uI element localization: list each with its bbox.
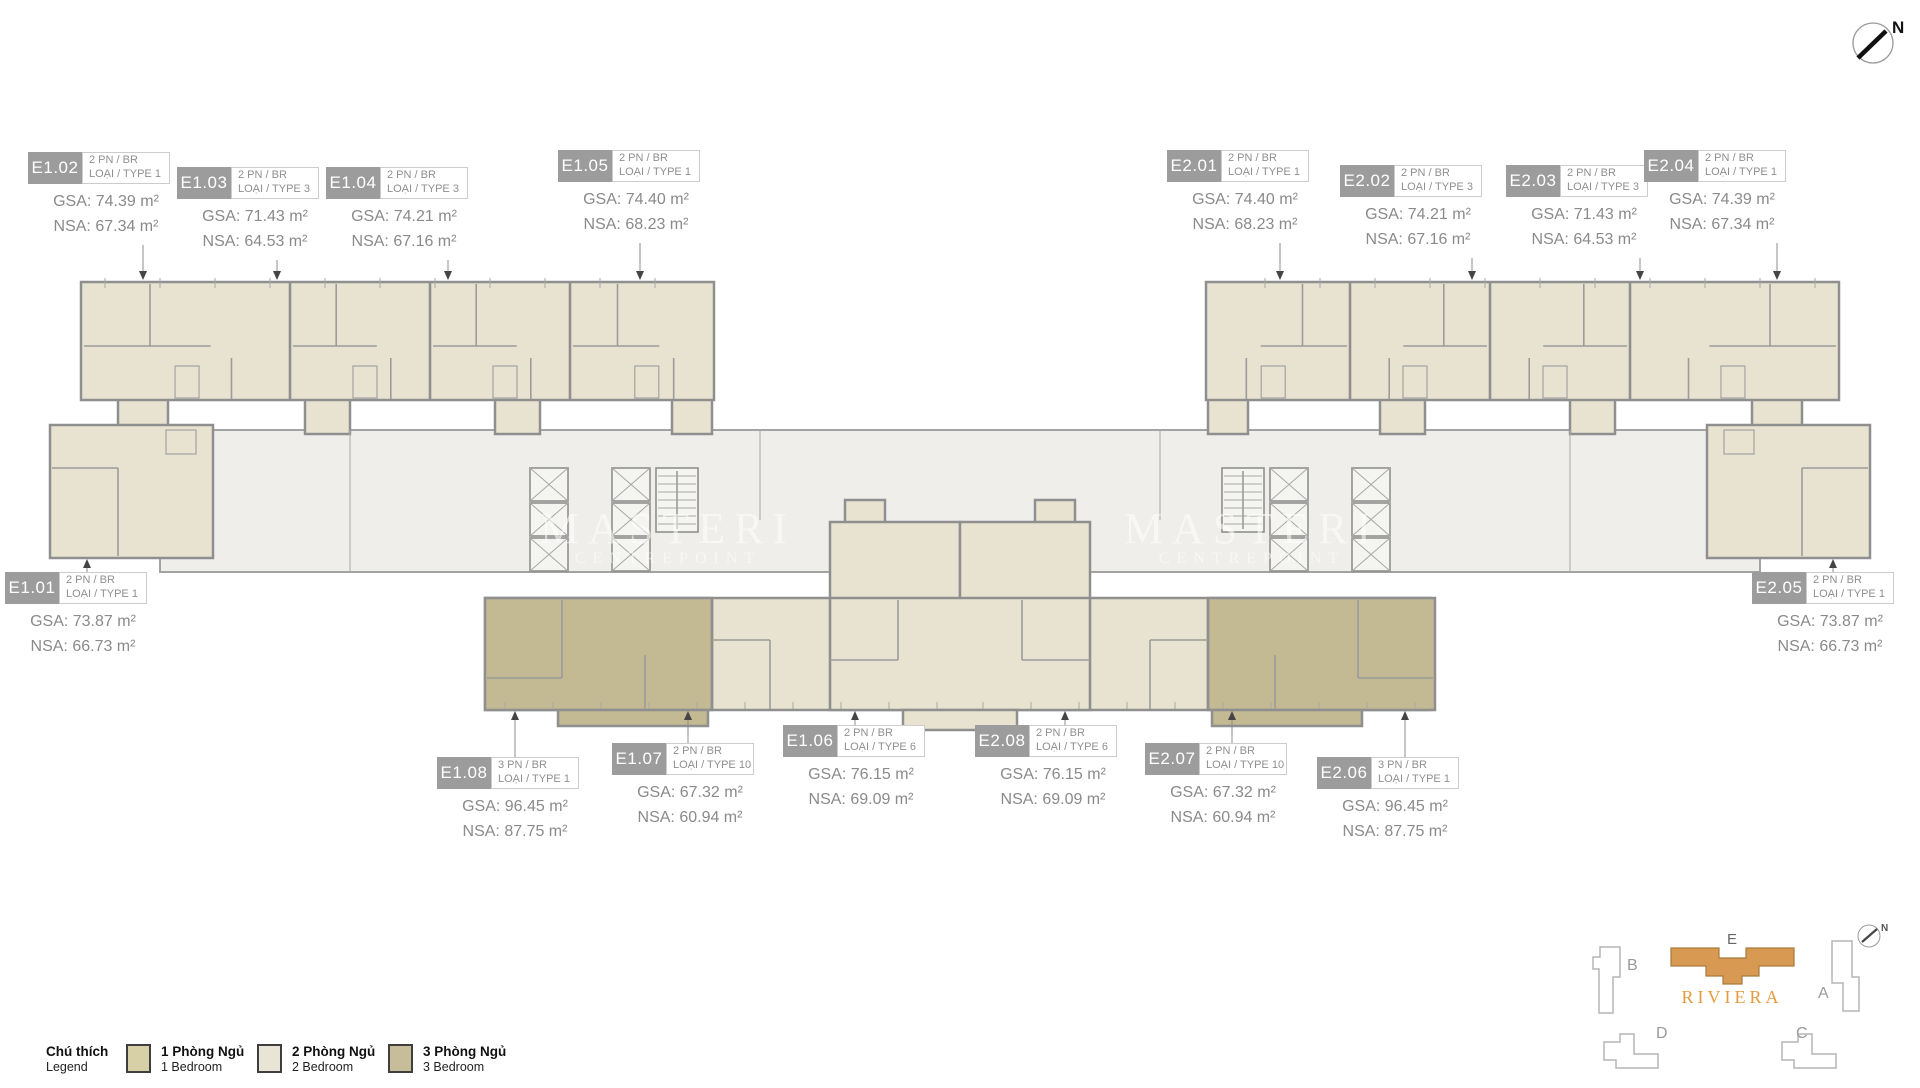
legend-label-2br-vi: 2 Phòng Ngủ	[292, 1044, 375, 1060]
unit-type-box: 2 PN / BRLOẠI / TYPE 3	[380, 167, 468, 199]
site-key: E B A D C RIVIERA N	[1593, 923, 1888, 1068]
unit-label-E2.05: E2.052 PN / BRLOẠI / TYPE 1	[1752, 572, 1894, 604]
leader-arrow	[1468, 271, 1476, 280]
unit-type-box: 2 PN / BRLOẠI / TYPE 1	[1698, 150, 1786, 182]
legend-label-3br-en: 3 Bedroom	[423, 1060, 506, 1075]
key-label-d: D	[1656, 1025, 1668, 1042]
unit-id-badge: E2.03	[1506, 165, 1560, 197]
unit-type-line: LOẠI / TYPE 10	[673, 759, 753, 773]
leader-arrow	[1061, 711, 1069, 720]
unit-gsa: GSA: 74.40 m²	[1155, 187, 1335, 212]
unit-type-box: 2 PN / BRLOẠI / TYPE 1	[1806, 572, 1894, 604]
unit-nsa: NSA: 60.94 m²	[1133, 805, 1313, 830]
unit-bedrooms-line: 2 PN / BR	[387, 169, 467, 183]
unit-label-E2.01: E2.012 PN / BRLOẠI / TYPE 1	[1167, 150, 1309, 182]
unit-id-badge: E2.06	[1317, 757, 1371, 789]
key-label-b: B	[1627, 957, 1638, 974]
unit-areas-E2.08: GSA: 76.15 m²NSA: 69.09 m²	[963, 762, 1143, 812]
unit-label-E1.02: E1.022 PN / BRLOẠI / TYPE 1	[28, 152, 170, 184]
leader-arrow	[273, 271, 281, 280]
unit-bedrooms-line: 2 PN / BR	[1228, 152, 1308, 166]
key-building-a	[1832, 941, 1859, 1011]
plan-unit-end	[50, 425, 213, 558]
unit-id-badge: E2.02	[1340, 165, 1394, 197]
unit-gsa: GSA: 96.45 m²	[425, 794, 605, 819]
legend: Chú thích Legend 1 Phòng Ngủ 1 Bedroom 2…	[46, 1044, 519, 1075]
unit-bedrooms-line: 2 PN / BR	[673, 745, 753, 759]
legend-swatch-3br	[388, 1044, 413, 1073]
unit-type-line: LOẠI / TYPE 1	[1705, 166, 1785, 180]
unit-label-E2.08: E2.082 PN / BRLOẠI / TYPE 6	[975, 725, 1117, 757]
unit-id-badge: E1.01	[5, 572, 59, 604]
legend-item-2br: 2 Phòng Ngủ 2 Bedroom	[257, 1044, 388, 1075]
unit-gsa: GSA: 76.15 m²	[771, 762, 951, 787]
unit-gsa: GSA: 73.87 m²	[1740, 609, 1920, 634]
unit-nsa: NSA: 67.34 m²	[1632, 212, 1812, 237]
unit-bedrooms-line: 2 PN / BR	[619, 152, 699, 166]
unit-bedrooms-line: 2 PN / BR	[844, 727, 924, 741]
unit-bedrooms-line: 3 PN / BR	[498, 759, 578, 773]
leader-arrow	[139, 271, 147, 280]
unit-gsa: GSA: 67.32 m²	[1133, 780, 1313, 805]
floor-plan: MASTERICENTREPOINTMASTERICENTREPOINT N E…	[0, 0, 1920, 1088]
unit-label-E2.06: E2.063 PN / BRLOẠI / TYPE 1	[1317, 757, 1459, 789]
unit-areas-E2.01: GSA: 74.40 m²NSA: 68.23 m²	[1155, 187, 1335, 237]
unit-type-box: 2 PN / BRLOẠI / TYPE 10	[666, 743, 754, 775]
unit-nsa: NSA: 69.09 m²	[963, 787, 1143, 812]
unit-type-box: 2 PN / BRLOẠI / TYPE 1	[612, 150, 700, 182]
compass: N	[1853, 18, 1904, 63]
unit-label-E2.07: E2.072 PN / BRLOẠI / TYPE 10	[1145, 743, 1287, 775]
unit-areas-E2.04: GSA: 74.39 m²NSA: 67.34 m²	[1632, 187, 1812, 237]
unit-label-E2.03: E2.032 PN / BRLOẠI / TYPE 3	[1506, 165, 1648, 197]
unit-type-line: LOẠI / TYPE 1	[89, 168, 169, 182]
plan-unit-3br	[1208, 598, 1435, 710]
unit-type-box: 2 PN / BRLOẠI / TYPE 1	[82, 152, 170, 184]
project-name: RIVIERA	[1682, 987, 1783, 1007]
unit-areas-E1.08: GSA: 96.45 m²NSA: 87.75 m²	[425, 794, 605, 844]
unit-label-E1.05: E1.052 PN / BRLOẠI / TYPE 1	[558, 150, 700, 182]
unit-type-line: LOẠI / TYPE 1	[1813, 588, 1893, 602]
unit-label-E1.08: E1.083 PN / BRLOẠI / TYPE 1	[437, 757, 579, 789]
unit-label-E1.06: E1.062 PN / BRLOẠI / TYPE 6	[783, 725, 925, 757]
unit-id-badge: E2.01	[1167, 150, 1221, 182]
unit-gsa: GSA: 74.21 m²	[314, 204, 494, 229]
unit-gsa: GSA: 73.87 m²	[0, 609, 173, 634]
unit-gsa: GSA: 67.32 m²	[600, 780, 780, 805]
unit-nsa: NSA: 66.73 m²	[1740, 634, 1920, 659]
watermark-subtext: CENTREPOINT	[1159, 550, 1345, 567]
unit-type-line: LOẠI / TYPE 3	[238, 183, 318, 197]
key-compass-north-label: N	[1881, 923, 1888, 934]
leader-arrow	[1829, 559, 1837, 568]
unit-id-badge: E1.07	[612, 743, 666, 775]
unit-id-badge: E2.05	[1752, 572, 1806, 604]
unit-type-line: LOẠI / TYPE 6	[844, 741, 924, 755]
unit-label-E1.01: E1.012 PN / BRLOẠI / TYPE 1	[5, 572, 147, 604]
key-building-b	[1593, 947, 1620, 1013]
unit-type-line: LOẠI / TYPE 1	[498, 773, 578, 787]
unit-type-line: LOẠI / TYPE 1	[66, 588, 146, 602]
unit-gsa: GSA: 96.45 m²	[1305, 794, 1485, 819]
unit-bedrooms-line: 2 PN / BR	[1813, 574, 1893, 588]
unit-type-box: 2 PN / BRLOẠI / TYPE 3	[1394, 165, 1482, 197]
legend-swatch-1br	[126, 1044, 151, 1073]
legend-title-vi: Chú thích	[46, 1044, 126, 1060]
unit-bedrooms-line: 2 PN / BR	[66, 574, 146, 588]
unit-bedrooms-line: 2 PN / BR	[238, 169, 318, 183]
unit-areas-E1.07: GSA: 67.32 m²NSA: 60.94 m²	[600, 780, 780, 830]
unit-nsa: NSA: 68.23 m²	[546, 212, 726, 237]
top-wing	[81, 282, 714, 400]
legend-swatch-2br	[257, 1044, 282, 1073]
key-building-c	[1782, 1034, 1836, 1068]
unit-bedrooms-line: 2 PN / BR	[1567, 167, 1647, 181]
floorplan-page: MASTERICENTREPOINTMASTERICENTREPOINT N E…	[0, 0, 1920, 1088]
key-label-a: A	[1818, 985, 1829, 1002]
leader-arrow	[1401, 711, 1409, 720]
unit-areas-E1.01: GSA: 73.87 m²NSA: 66.73 m²	[0, 609, 173, 659]
unit-id-badge: E2.07	[1145, 743, 1199, 775]
leader-arrow	[1773, 271, 1781, 280]
unit-areas-E2.07: GSA: 67.32 m²NSA: 60.94 m²	[1133, 780, 1313, 830]
unit-gsa: GSA: 76.15 m²	[963, 762, 1143, 787]
plan-unit-end	[1707, 425, 1870, 558]
legend-label-2br-en: 2 Bedroom	[292, 1060, 375, 1075]
unit-type-box: 3 PN / BRLOẠI / TYPE 1	[1371, 757, 1459, 789]
unit-type-line: LOẠI / TYPE 1	[1228, 166, 1308, 180]
unit-gsa: GSA: 74.21 m²	[1328, 202, 1508, 227]
unit-id-badge: E1.08	[437, 757, 491, 789]
unit-nsa: NSA: 87.75 m²	[425, 819, 605, 844]
unit-type-box: 2 PN / BRLOẠI / TYPE 3	[231, 167, 319, 199]
unit-areas-E2.05: GSA: 73.87 m²NSA: 66.73 m²	[1740, 609, 1920, 659]
legend-title: Chú thích Legend	[46, 1044, 126, 1075]
unit-id-badge: E1.05	[558, 150, 612, 182]
watermark-text: MASTERI	[1124, 504, 1380, 553]
leader-arrow	[444, 271, 452, 280]
unit-label-E2.04: E2.042 PN / BRLOẠI / TYPE 1	[1644, 150, 1786, 182]
legend-title-en: Legend	[46, 1060, 126, 1075]
key-building-e	[1671, 948, 1794, 984]
unit-nsa: NSA: 67.16 m²	[1328, 227, 1508, 252]
compass-north-label: N	[1892, 18, 1904, 37]
unit-label-E1.04: E1.042 PN / BRLOẠI / TYPE 3	[326, 167, 468, 199]
unit-type-box: 2 PN / BRLOẠI / TYPE 6	[1029, 725, 1117, 757]
unit-bedrooms-line: 2 PN / BR	[1036, 727, 1116, 741]
unit-nsa: NSA: 87.75 m²	[1305, 819, 1485, 844]
unit-gsa: GSA: 74.39 m²	[1632, 187, 1812, 212]
legend-label-1br-vi: 1 Phòng Ngủ	[161, 1044, 244, 1060]
key-label-e: E	[1727, 931, 1737, 948]
unit-type-line: LOẠI / TYPE 1	[619, 166, 699, 180]
top-wing	[1206, 282, 1839, 400]
unit-type-line: LOẠI / TYPE 3	[387, 183, 467, 197]
leader-arrow	[511, 711, 519, 720]
unit-bedrooms-line: 2 PN / BR	[89, 154, 169, 168]
plan-unit-3br	[485, 598, 712, 710]
key-compass: N	[1858, 923, 1888, 947]
unit-type-box: 2 PN / BRLOẠI / TYPE 1	[1221, 150, 1309, 182]
unit-nsa: NSA: 69.09 m²	[771, 787, 951, 812]
unit-bedrooms-line: 3 PN / BR	[1378, 759, 1458, 773]
unit-type-box: 2 PN / BRLOẠI / TYPE 1	[59, 572, 147, 604]
unit-type-box: 3 PN / BRLOẠI / TYPE 1	[491, 757, 579, 789]
leader-arrow	[1276, 271, 1284, 280]
unit-label-E2.02: E2.022 PN / BRLOẠI / TYPE 3	[1340, 165, 1482, 197]
unit-label-E1.07: E1.072 PN / BRLOẠI / TYPE 10	[612, 743, 754, 775]
unit-areas-E2.06: GSA: 96.45 m²NSA: 87.75 m²	[1305, 794, 1485, 844]
unit-id-badge: E1.06	[783, 725, 837, 757]
legend-item-3br: 3 Phòng Ngủ 3 Bedroom	[388, 1044, 519, 1075]
legend-item-1br: 1 Phòng Ngủ 1 Bedroom	[126, 1044, 257, 1075]
unit-id-badge: E2.08	[975, 725, 1029, 757]
unit-areas-E2.02: GSA: 74.21 m²NSA: 67.16 m²	[1328, 202, 1508, 252]
unit-id-badge: E2.04	[1644, 150, 1698, 182]
watermark-subtext: CENTREPOINT	[575, 550, 761, 567]
unit-areas-E1.04: GSA: 74.21 m²NSA: 67.16 m²	[314, 204, 494, 254]
unit-type-box: 2 PN / BRLOẠI / TYPE 6	[837, 725, 925, 757]
unit-id-badge: E1.03	[177, 167, 231, 199]
unit-bedrooms-line: 2 PN / BR	[1206, 745, 1286, 759]
unit-type-line: LOẠI / TYPE 6	[1036, 741, 1116, 755]
key-label-c: C	[1796, 1025, 1808, 1042]
unit-nsa: NSA: 67.16 m²	[314, 229, 494, 254]
unit-id-badge: E1.04	[326, 167, 380, 199]
unit-type-box: 2 PN / BRLOẠI / TYPE 10	[1199, 743, 1287, 775]
leader-arrow	[1636, 271, 1644, 280]
legend-label-1br-en: 1 Bedroom	[161, 1060, 244, 1075]
unit-gsa: GSA: 74.40 m²	[546, 187, 726, 212]
leader-arrow	[851, 711, 859, 720]
unit-type-line: LOẠI / TYPE 3	[1401, 181, 1481, 195]
watermark-text: MASTERI	[540, 504, 796, 553]
unit-nsa: NSA: 60.94 m²	[600, 805, 780, 830]
key-building-d	[1604, 1034, 1658, 1068]
unit-label-E1.03: E1.032 PN / BRLOẠI / TYPE 3	[177, 167, 319, 199]
leader-arrow	[83, 559, 91, 568]
unit-bedrooms-line: 2 PN / BR	[1705, 152, 1785, 166]
unit-areas-E1.06: GSA: 76.15 m²NSA: 69.09 m²	[771, 762, 951, 812]
unit-bedrooms-line: 2 PN / BR	[1401, 167, 1481, 181]
unit-nsa: NSA: 68.23 m²	[1155, 212, 1335, 237]
unit-nsa: NSA: 66.73 m²	[0, 634, 173, 659]
leader-arrow	[636, 271, 644, 280]
unit-type-line: LOẠI / TYPE 10	[1206, 759, 1286, 773]
unit-areas-E1.05: GSA: 74.40 m²NSA: 68.23 m²	[546, 187, 726, 237]
unit-id-badge: E1.02	[28, 152, 82, 184]
legend-label-3br-vi: 3 Phòng Ngủ	[423, 1044, 506, 1060]
unit-type-line: LOẠI / TYPE 1	[1378, 773, 1458, 787]
